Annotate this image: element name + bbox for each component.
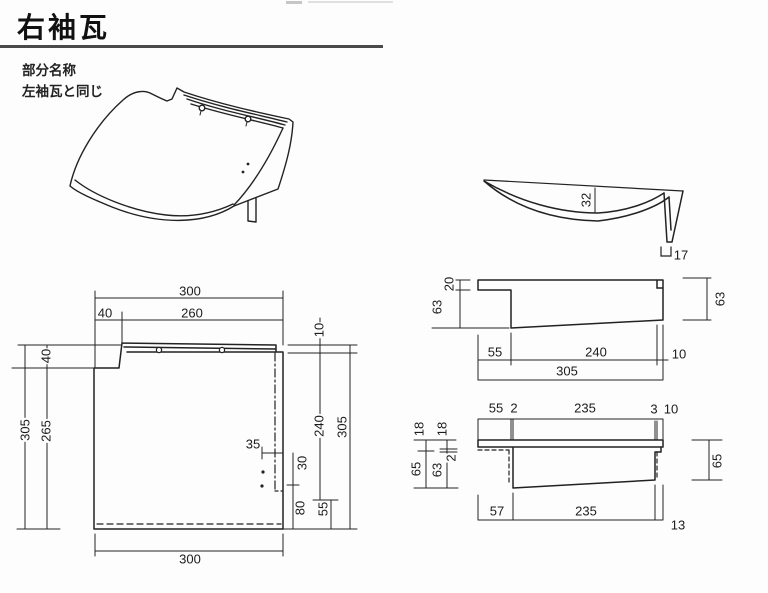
face-dot — [242, 171, 245, 174]
leg-width-bracket — [661, 247, 671, 256]
dim-sideb-left-outer-top: 18 — [413, 421, 426, 437]
side-a-outline — [478, 280, 663, 328]
dim-plan-right-lower: 80 — [294, 500, 307, 516]
side-b-hidden-edges — [478, 450, 657, 484]
dim-sideb-t3: 235 — [573, 402, 597, 415]
dim-plan-notch-height: 30 — [296, 455, 309, 471]
plan-dimension-lines — [12, 291, 357, 556]
dim-sideb-t2: 2 — [509, 402, 518, 415]
dim-sideb-left-inner-top: 18 — [436, 421, 449, 437]
tile-outline — [70, 88, 293, 220]
dim-sidea-left-top: 20 — [443, 276, 456, 292]
dim-sideb-right: 65 — [711, 453, 724, 469]
dim-sideb-t4: 3 — [649, 403, 658, 416]
drawing-canvas — [0, 0, 768, 593]
dim-sidea-b2: 240 — [584, 346, 608, 359]
dim-plan-top-overall: 300 — [178, 285, 202, 298]
dim-sidea-left-main: 63 — [431, 299, 444, 315]
dim-sidea-right: 63 — [714, 291, 727, 307]
dim-sidea-b3: 10 — [671, 348, 687, 361]
dim-sideb-t5: 10 — [663, 403, 679, 416]
side-b-dimension-lines — [414, 419, 722, 520]
dim-plan-left-overall: 305 — [19, 418, 32, 442]
side-view-lower — [414, 419, 722, 520]
dim-plan-left-lower: 265 — [40, 419, 53, 443]
tile-corner-leg — [248, 198, 256, 222]
dim-sideb-b1: 57 — [489, 505, 505, 518]
plan-view — [12, 291, 357, 556]
side-b-outline — [478, 440, 663, 488]
dim-sidea-b1: 55 — [487, 346, 503, 359]
dim-plan-bottom-overall: 300 — [178, 553, 202, 566]
dim-sideb-b3: 13 — [670, 519, 686, 532]
nail-hole — [156, 347, 161, 352]
dim-plan-notch-width: 35 — [245, 438, 261, 451]
dim-section-depth: 32 — [580, 192, 593, 208]
dim-sidea-btotal: 305 — [555, 365, 579, 378]
dim-section-leg: 17 — [673, 249, 689, 262]
dim-plan-top-left: 40 — [97, 307, 113, 320]
nail-hole — [199, 105, 205, 111]
document-page: 右袖瓦 部分名称 左袖瓦と同じ — [0, 0, 768, 593]
dim-sideb-b2: 235 — [574, 505, 598, 518]
dim-plan-right-rib: 10 — [313, 322, 326, 338]
dim-plan-right-corner: 55 — [317, 501, 330, 517]
dim-sideb-left-outer: 65 — [410, 461, 423, 477]
dim-plan-left-upper: 40 — [40, 348, 53, 364]
face-dot — [247, 163, 250, 166]
dim-plan-right-overall: 305 — [336, 415, 349, 439]
perspective-view — [70, 88, 293, 222]
dim-sideb-left-inner: 63 — [431, 462, 444, 478]
section-curves — [484, 181, 669, 221]
nail-hole — [219, 347, 224, 352]
dim-plan-right-upper: 240 — [313, 414, 326, 438]
dim-sideb-left-inner-small: 2 — [445, 453, 458, 462]
dim-sideb-t1: 55 — [488, 402, 504, 415]
section-chord — [484, 180, 683, 191]
plan-dot — [260, 484, 263, 487]
nail-hole — [245, 116, 251, 122]
dim-plan-top-right: 260 — [180, 307, 204, 320]
plan-dot — [261, 470, 264, 473]
